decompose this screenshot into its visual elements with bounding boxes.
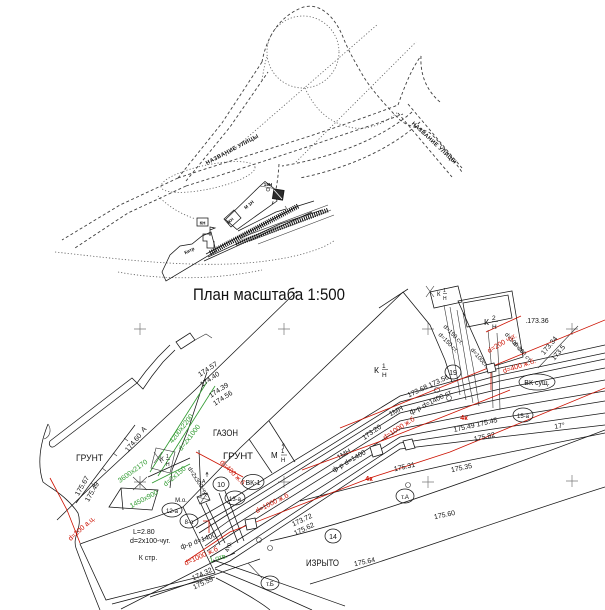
svg-text:ГРУНТ: ГРУНТ xyxy=(76,453,103,463)
svg-text:К: К xyxy=(374,365,379,375)
svg-text:1: 1 xyxy=(166,454,169,460)
svg-text:М.о.: М.о. xyxy=(175,498,187,504)
svg-text:.173.36: .173.36 xyxy=(525,318,548,325)
svg-text:Н: Н xyxy=(492,324,497,331)
svg-text:Н: Н xyxy=(382,372,387,379)
svg-text:15-а: 15-а xyxy=(517,414,530,420)
svg-text:L=2.80: L=2.80 xyxy=(133,529,155,536)
svg-text:4к: 4к xyxy=(460,415,468,422)
svg-text:План масштаба 1:500: План масштаба 1:500 xyxy=(193,285,345,304)
svg-text:М: М xyxy=(271,451,278,460)
svg-text:К: К xyxy=(484,317,489,327)
svg-text:18Н: 18Н xyxy=(264,182,273,187)
svg-text:Н: Н xyxy=(281,458,285,464)
svg-text:КН: КН xyxy=(200,221,206,226)
svg-text:d=2x100-чуг.: d=2x100-чуг. xyxy=(130,538,170,545)
svg-text:12-а: 12-а xyxy=(166,509,179,515)
svg-text:К: К xyxy=(437,292,441,298)
svg-text:ГАЗОН: ГАЗОН xyxy=(213,428,238,439)
svg-text:19: 19 xyxy=(449,370,457,377)
svg-text:ВК-1: ВК-1 xyxy=(246,480,261,487)
svg-text:т.А: т.А xyxy=(401,495,409,501)
svg-text:К: К xyxy=(160,456,164,463)
svg-text:ВК сущ.: ВК сущ. xyxy=(524,380,549,387)
svg-text:14: 14 xyxy=(329,534,337,541)
svg-text:8-а: 8-а xyxy=(185,520,194,526)
svg-text:13-а: 13-а xyxy=(229,497,242,503)
svg-text:Н: Н xyxy=(166,462,170,468)
svg-text:10: 10 xyxy=(217,482,225,489)
svg-text:ГРУНТ: ГРУНТ xyxy=(223,451,254,461)
svg-text:4к: 4к xyxy=(365,476,373,483)
svg-text:1: 1 xyxy=(382,363,386,370)
svg-text:ИЗРЫТО: ИЗРЫТО xyxy=(306,558,339,568)
svg-text:т.Б: т.Б xyxy=(266,582,274,588)
svg-text:К стр.: К стр. xyxy=(139,555,158,562)
svg-text:2: 2 xyxy=(492,315,496,322)
svg-text:Н: Н xyxy=(443,296,447,302)
